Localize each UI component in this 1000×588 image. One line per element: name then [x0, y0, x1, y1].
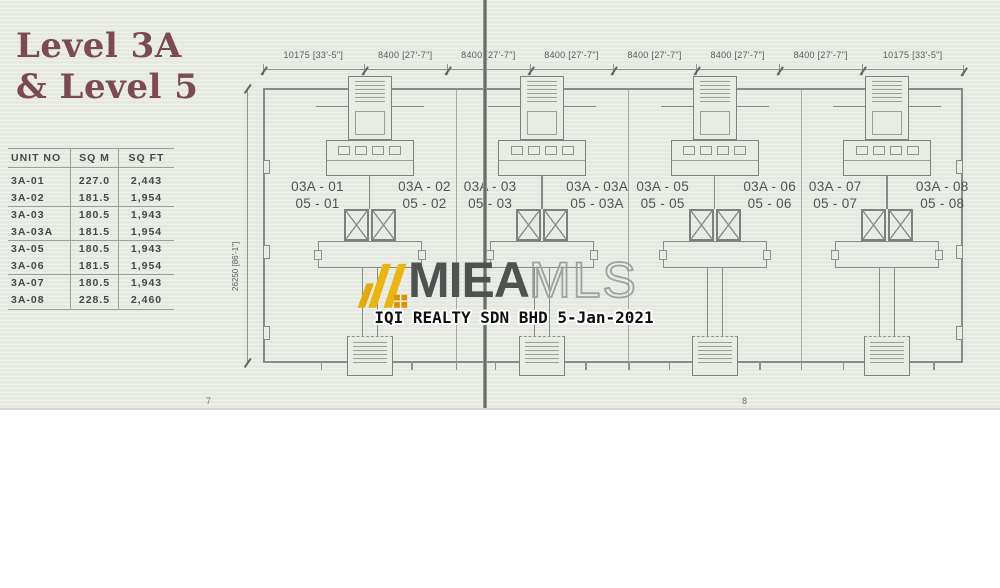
table-cell: 181.5 [70, 190, 118, 207]
table-cell: 3A-07 [8, 275, 70, 292]
lift-shafts [689, 209, 741, 241]
dimension-segment: 8400 [27'-7"] [696, 36, 779, 70]
table-cell: 181.5 [70, 224, 118, 241]
stair-hatch [353, 342, 387, 363]
dimension-end-tick [963, 69, 964, 70]
fixture [338, 146, 350, 155]
staircase-top [865, 76, 909, 140]
fixture [873, 146, 885, 155]
unit-number-level5: 05 - 03 [443, 195, 537, 212]
fixture [389, 146, 401, 155]
staircase-bottom [519, 336, 565, 376]
unit-number-level5: 05 - 05 [616, 195, 710, 212]
unit-number-level3a: 03A - 07 [788, 178, 882, 195]
brochure-page: Level 3A & Level 5 UNIT NO SQ M SQ FT 3A… [0, 0, 1000, 410]
table-cell: 3A-06 [8, 258, 70, 275]
dimension-label: 8400 [27'-7"] [447, 50, 530, 60]
fixture [907, 146, 919, 155]
core-wall [886, 176, 888, 209]
table-cell: 2,443 [118, 168, 174, 190]
core-wing-wall [833, 106, 865, 107]
toilet-core [326, 140, 414, 176]
corridor [879, 268, 895, 336]
column-mark [956, 326, 963, 340]
lift-shaft [371, 209, 396, 241]
table-cell: 1,943 [118, 275, 174, 292]
dimension-label: 8400 [27'-7"] [613, 50, 696, 60]
table-header-sq-ft: SQ FT [118, 149, 174, 168]
page-number-left: 7 [206, 396, 211, 406]
column-tick [843, 361, 845, 370]
stair-hatch [872, 81, 902, 105]
page-number-right: 8 [742, 396, 747, 406]
toilet-core [671, 140, 759, 176]
fixture [717, 146, 729, 155]
lift-shaft [689, 209, 714, 241]
dimension-segment: 8400 [27'-7"] [364, 36, 447, 70]
core-wall [499, 160, 585, 161]
lift-shaft [344, 209, 369, 241]
fixture [528, 146, 540, 155]
dimension-label: 8400 [27'-7"] [779, 50, 862, 60]
staircase-bottom [692, 336, 738, 376]
mls-watermark: MIEAMLS [356, 254, 638, 310]
fixture [856, 146, 868, 155]
core-wall [714, 176, 716, 209]
brand-miea: MIEA [408, 252, 529, 308]
staircase-top [520, 76, 564, 140]
staircase-top [348, 76, 392, 140]
column-mark [314, 250, 322, 260]
corridor [707, 268, 723, 336]
dimension-segment: 8400 [27'-7"] [613, 36, 696, 70]
table-cell: 180.5 [70, 241, 118, 258]
fixture [683, 146, 695, 155]
table-cell: 3A-05 [8, 241, 70, 258]
column-tick [321, 361, 323, 370]
left-dimension-label: 26250 [86'-1"] [231, 201, 240, 291]
stair-hatch [355, 81, 385, 105]
table-cell: 1,943 [118, 207, 174, 224]
lift-shafts [344, 209, 396, 241]
dimension-segment: 10175 [33'-5"] [862, 36, 963, 70]
column-tick [801, 361, 803, 370]
core-wing-wall [488, 106, 520, 107]
unit-number-level3a: 03A - 01 [271, 178, 365, 195]
table-cell: 3A-08 [8, 292, 70, 309]
unit-area-table: UNIT NO SQ M SQ FT 3A-01 227.0 2,443 3A-… [8, 148, 174, 310]
lift-shaft [861, 209, 886, 241]
dimension-label: 8400 [27'-7"] [364, 50, 447, 60]
core-wall [541, 176, 543, 209]
toilet-core [498, 140, 586, 176]
dimension-segment: 10175 [33'-5"] [263, 36, 364, 70]
core-wall [327, 160, 413, 161]
fixture [355, 146, 367, 155]
stair-landing [355, 111, 385, 135]
table-header-unit-no: UNIT NO [8, 149, 70, 168]
table-cell: 1,943 [118, 241, 174, 258]
unit-number-level5: 05 - 01 [271, 195, 365, 212]
lift-shaft [543, 209, 568, 241]
dimension-label: 8400 [27'-7"] [696, 50, 779, 60]
unit-number-level5: 05 - 08 [895, 195, 989, 212]
column-tick [495, 361, 497, 370]
fixture [700, 146, 712, 155]
column-mark [763, 250, 771, 260]
core-wing-wall [564, 106, 596, 107]
lift-shaft [516, 209, 541, 241]
column-tick [456, 361, 458, 370]
column-tick [411, 361, 413, 370]
lift-lobby [835, 241, 939, 268]
lift-lobby [663, 241, 767, 268]
column-tick [585, 361, 587, 370]
table-cell: 1,954 [118, 258, 174, 275]
table-cell: 3A-01 [8, 168, 70, 190]
unit-label: 03A - 08 05 - 08 [895, 178, 989, 212]
unit-number-level3a: 03A - 08 [895, 178, 989, 195]
table-cell: 181.5 [70, 258, 118, 275]
stair-hatch [870, 342, 904, 363]
stair-landing [527, 111, 557, 135]
table-cell: 2,460 [118, 292, 174, 309]
table-cell: 180.5 [70, 275, 118, 292]
dimension-label: 10175 [33'-5"] [263, 50, 364, 60]
core-wing-wall [392, 106, 424, 107]
dimension-label: 10175 [33'-5"] [862, 50, 963, 60]
table-cell: 228.5 [70, 292, 118, 309]
core-wing-wall [909, 106, 941, 107]
table-cell: 3A-03A [8, 224, 70, 241]
lift-shafts [861, 209, 913, 241]
stair-hatch [698, 342, 732, 363]
stair-landing [700, 111, 730, 135]
core-wall [844, 160, 930, 161]
fixture [562, 146, 574, 155]
dimension-segment: 8400 [27'-7"] [779, 36, 862, 70]
fixture [734, 146, 746, 155]
dimension-segment: 8400 [27'-7"] [530, 36, 613, 70]
unit-number-level3a: 03A - 03 [443, 178, 537, 195]
table-cell: 227.0 [70, 168, 118, 190]
mls-brand-text: MIEAMLS [408, 254, 638, 306]
stair-hatch [525, 342, 559, 363]
column-mark [831, 250, 839, 260]
table-cell: 3A-03 [8, 207, 70, 224]
page-title: Level 3A & Level 5 [16, 26, 198, 108]
table-header-sq-m: SQ M [70, 149, 118, 168]
miea-logo-icon [356, 260, 408, 310]
unit-divider [801, 90, 802, 361]
realty-stamp-text: IQI REALTY SDN BHD 5-Jan-2021 [364, 308, 664, 327]
floor-plan: 10175 [33'-5"] 8400 [27'-7"] 8400 [27'-7… [247, 36, 963, 381]
column-tick [669, 361, 671, 370]
lift-shaft [888, 209, 913, 241]
table-cell: 180.5 [70, 207, 118, 224]
page-title-line1: Level 3A [16, 26, 198, 67]
fixture [890, 146, 902, 155]
column-tick [628, 361, 630, 370]
fixture [545, 146, 557, 155]
core-wall [369, 176, 371, 209]
stair-hatch [700, 81, 730, 105]
left-dimension-line [247, 88, 248, 363]
core-wing-wall [316, 106, 348, 107]
unit-label: 03A - 05 05 - 05 [616, 178, 710, 212]
top-dimension-row: 10175 [33'-5"] 8400 [27'-7"] 8400 [27'-7… [263, 36, 963, 70]
column-mark [956, 245, 963, 259]
column-tick [933, 361, 935, 370]
table-cell: 1,954 [118, 224, 174, 241]
page-fold-line [483, 0, 487, 408]
brand-mls: MLS [529, 252, 638, 308]
unit-label: 03A - 01 05 - 01 [271, 178, 365, 212]
core-wall [672, 160, 758, 161]
page-title-line2: & Level 5 [16, 67, 198, 108]
column-mark [935, 250, 943, 260]
unit-number-level3a: 03A - 05 [616, 178, 710, 195]
dimension-label: 8400 [27'-7"] [530, 50, 613, 60]
lift-shaft [716, 209, 741, 241]
unit-number-level5: 05 - 07 [788, 195, 882, 212]
column-mark [263, 245, 270, 259]
staircase-bottom [864, 336, 910, 376]
table-cell: 3A-02 [8, 190, 70, 207]
unit-label: 03A - 03 05 - 03 [443, 178, 537, 212]
staircase-bottom [347, 336, 393, 376]
column-mark [659, 250, 667, 260]
unit-label: 03A - 07 05 - 07 [788, 178, 882, 212]
fixture [511, 146, 523, 155]
column-mark [956, 160, 963, 174]
fixture [372, 146, 384, 155]
core-wing-wall [737, 106, 769, 107]
column-tick [759, 361, 761, 370]
lift-shafts [516, 209, 568, 241]
staircase-top [693, 76, 737, 140]
column-mark [263, 326, 270, 340]
dimension-segment: 8400 [27'-7"] [447, 36, 530, 70]
toilet-core [843, 140, 931, 176]
stair-hatch [527, 81, 557, 105]
core-wing-wall [661, 106, 693, 107]
stair-landing [872, 111, 902, 135]
column-mark [263, 160, 270, 174]
table-cell: 1,954 [118, 190, 174, 207]
